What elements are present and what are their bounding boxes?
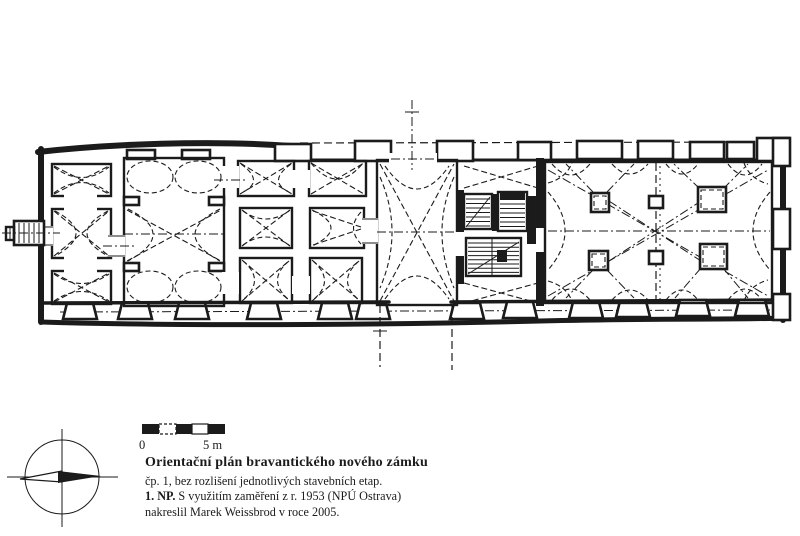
caption-line-2: 1. NP. S využitím zaměření z r. 1953 (NP… [145,489,428,504]
scale-end-label: 5 m [203,438,222,452]
east-wall-pilasters [773,138,790,320]
caption-line-1: čp. 1, bez rozlišení jednotlivých staveb… [145,474,428,489]
north-needle-icon [58,471,101,483]
door-openings [40,153,465,294]
scale-bar: 0 5 m [139,424,225,452]
caption-line-2-bold: 1. NP. [145,489,175,503]
plan-title: Orientační plán bravantického nového zám… [145,455,428,471]
great-hall [548,163,770,302]
scale-zero-label: 0 [139,438,145,452]
caption-line-3: nakreslil Marek Weissbrod v roce 2005. [145,505,428,520]
scanned-page: 0 5 m Orientační plán bravantického nové… [0,0,800,536]
compass-rose-icon [7,429,118,527]
caption-block: Orientační plán bravantického nového zám… [145,455,428,520]
caption-line-2-rest: S využitím zaměření z r. 1953 (NPÚ Ostra… [175,489,401,503]
